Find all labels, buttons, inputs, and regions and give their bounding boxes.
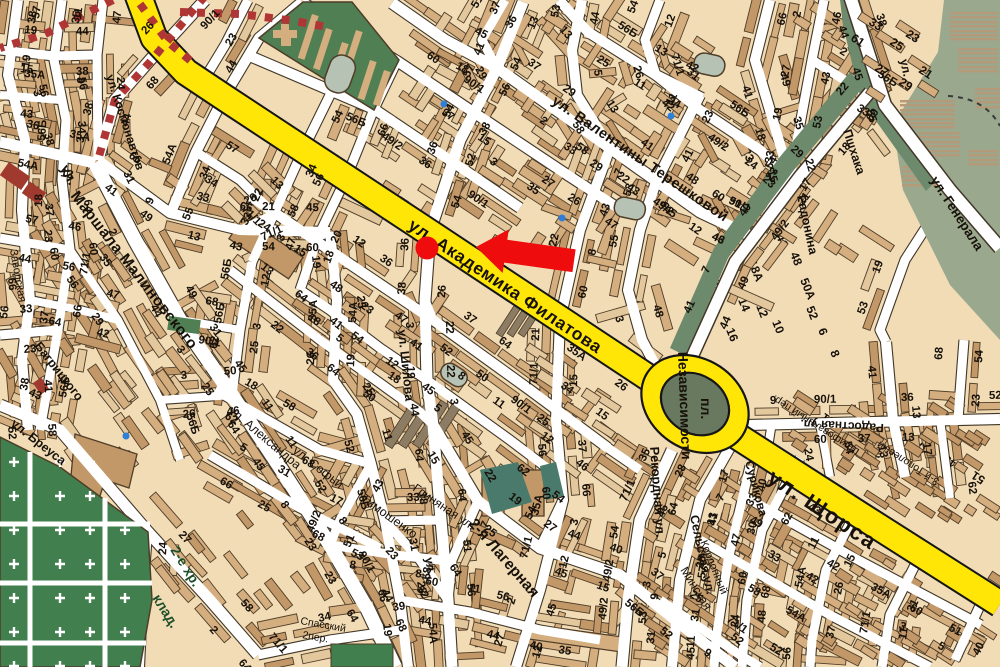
svg-text:46: 46 — [67, 220, 82, 234]
svg-text:58: 58 — [45, 423, 58, 437]
svg-text:33: 33 — [763, 150, 777, 165]
svg-text:57: 57 — [24, 213, 39, 227]
svg-text:13: 13 — [909, 405, 922, 419]
svg-text:56: 56 — [36, 83, 50, 98]
svg-text:62: 62 — [965, 481, 978, 495]
svg-text:11: 11 — [685, 635, 698, 649]
svg-text:22: 22 — [443, 321, 455, 334]
svg-text:38: 38 — [396, 281, 409, 295]
svg-text:37: 37 — [824, 625, 838, 640]
svg-text:53: 53 — [811, 115, 825, 130]
svg-text:19: 19 — [404, 366, 416, 379]
svg-text:46: 46 — [226, 405, 240, 418]
svg-text:54А: 54А — [347, 301, 360, 323]
svg-text:35: 35 — [558, 644, 573, 658]
svg-text:пл.: пл. — [698, 398, 714, 419]
svg-text:21: 21 — [262, 201, 276, 213]
svg-text:19: 19 — [345, 354, 358, 367]
svg-text:25: 25 — [248, 340, 262, 355]
svg-text:41: 41 — [865, 365, 878, 379]
svg-text:43: 43 — [819, 71, 833, 86]
svg-text:60: 60 — [736, 571, 750, 586]
svg-text:51: 51 — [460, 539, 473, 553]
svg-text:45: 45 — [685, 646, 698, 660]
svg-text:26: 26 — [832, 581, 846, 596]
svg-text:13: 13 — [902, 432, 915, 444]
svg-text:44: 44 — [76, 26, 90, 38]
svg-text:37: 37 — [575, 439, 588, 453]
svg-text:23: 23 — [41, 229, 54, 243]
svg-text:35А: 35А — [24, 68, 46, 82]
svg-text:19: 19 — [380, 623, 393, 637]
svg-text:26: 26 — [305, 352, 318, 365]
svg-text:3: 3 — [180, 370, 187, 382]
svg-text:64: 64 — [412, 448, 425, 462]
svg-text:64: 64 — [81, 199, 95, 214]
svg-text:33: 33 — [19, 303, 33, 316]
svg-text:37: 37 — [42, 203, 55, 217]
svg-text:53: 53 — [549, 4, 563, 19]
svg-text:60: 60 — [814, 434, 827, 446]
svg-text:60: 60 — [306, 242, 319, 254]
svg-text:50: 50 — [223, 365, 237, 378]
svg-text:12: 12 — [259, 273, 273, 288]
svg-text:48: 48 — [756, 609, 769, 623]
svg-text:22: 22 — [444, 365, 456, 378]
svg-text:17: 17 — [920, 442, 933, 456]
svg-text:31: 31 — [689, 607, 703, 622]
svg-text:26: 26 — [436, 285, 449, 299]
svg-text:11: 11 — [72, 6, 85, 20]
svg-text:54: 54 — [973, 349, 986, 363]
svg-text:58: 58 — [421, 566, 434, 581]
svg-text:24: 24 — [157, 541, 170, 555]
svg-text:37: 37 — [858, 433, 871, 445]
svg-text:19: 19 — [309, 255, 322, 269]
svg-text:19: 19 — [771, 107, 785, 122]
svg-text:36: 36 — [901, 392, 914, 404]
svg-text:9: 9 — [770, 395, 777, 407]
svg-text:36: 36 — [399, 238, 412, 252]
svg-text:24: 24 — [114, 77, 126, 91]
svg-text:46: 46 — [830, 11, 844, 26]
svg-text:52: 52 — [5, 426, 18, 440]
svg-text:21: 21 — [530, 327, 542, 341]
svg-text:57: 57 — [696, 565, 710, 580]
svg-text:71/1: 71/1 — [528, 362, 541, 385]
svg-text:27: 27 — [779, 64, 793, 79]
svg-text:66: 66 — [579, 483, 592, 497]
svg-text:23: 23 — [23, 343, 37, 356]
svg-text:66: 66 — [71, 304, 85, 319]
svg-text:60: 60 — [47, 247, 60, 261]
svg-text:68: 68 — [933, 346, 946, 360]
svg-text:53: 53 — [637, 610, 650, 624]
svg-text:56: 56 — [61, 260, 76, 274]
svg-text:38: 38 — [76, 66, 90, 78]
svg-text:52: 52 — [989, 390, 1000, 402]
svg-text:31: 31 — [645, 630, 658, 644]
svg-text:19: 19 — [24, 24, 38, 37]
svg-text:47: 47 — [111, 10, 124, 24]
svg-text:49/2: 49/2 — [597, 597, 611, 620]
svg-text:66: 66 — [5, 277, 18, 291]
svg-text:26: 26 — [182, 408, 196, 421]
svg-text:33: 33 — [407, 492, 420, 504]
svg-text:9: 9 — [649, 593, 662, 600]
svg-text:57: 57 — [30, 5, 44, 19]
svg-text:56: 56 — [0, 305, 12, 319]
svg-text:68: 68 — [205, 295, 220, 309]
svg-text:90/1: 90/1 — [814, 394, 837, 406]
svg-text:54: 54 — [608, 524, 622, 539]
svg-text:44: 44 — [407, 403, 421, 418]
svg-text:23: 23 — [970, 394, 983, 408]
svg-text:39: 39 — [392, 600, 406, 614]
svg-text:64: 64 — [455, 488, 468, 502]
svg-text:45: 45 — [306, 202, 320, 214]
